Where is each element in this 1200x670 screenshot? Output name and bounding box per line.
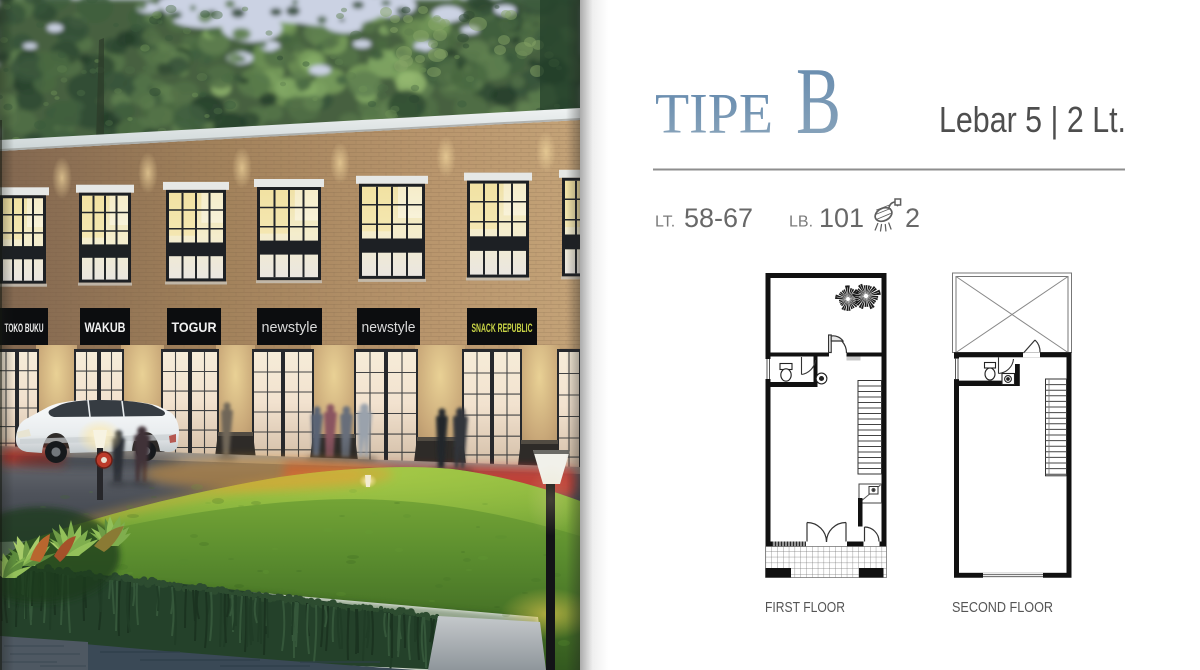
svg-text:B: B: [796, 48, 841, 154]
svg-text:newstyle: newstyle: [362, 319, 416, 336]
svg-text:TOGUR: TOGUR: [172, 319, 217, 335]
svg-text:SECOND FLOOR: SECOND FLOOR: [952, 600, 1053, 616]
svg-text:newstyle: newstyle: [262, 319, 318, 336]
svg-text:TIPE: TIPE: [655, 83, 773, 146]
svg-text:LT.: LT.: [655, 214, 675, 231]
svg-text:SNACK REPUBLIC: SNACK REPUBLIC: [472, 321, 533, 335]
svg-text:Lebar 5 | 2 Lt.: Lebar 5 | 2 Lt.: [939, 99, 1126, 140]
svg-text:FIRST FLOOR: FIRST FLOOR: [765, 600, 845, 616]
svg-text:LB.: LB.: [789, 214, 813, 231]
svg-text:58-67: 58-67: [684, 203, 753, 233]
svg-text:2: 2: [905, 203, 920, 233]
svg-text:101: 101: [819, 203, 864, 233]
svg-text:WAKUB: WAKUB: [85, 319, 126, 335]
